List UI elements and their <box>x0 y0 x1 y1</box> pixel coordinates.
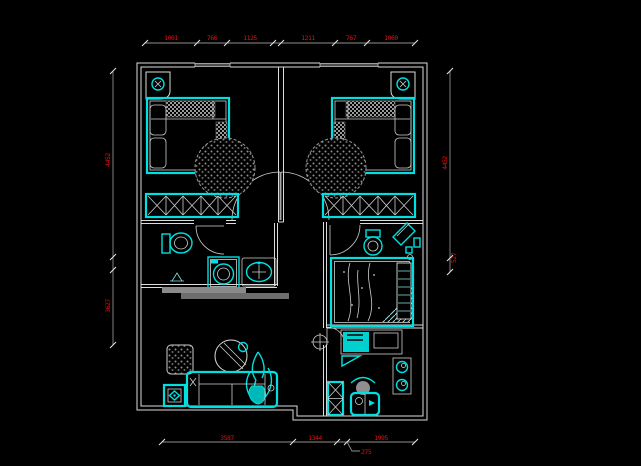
dim-label: 4452 <box>441 156 449 170</box>
floor-drain-symbol <box>170 273 184 281</box>
kitchen-study <box>328 330 411 415</box>
window-left <box>195 62 230 68</box>
dim-label: 4452 <box>104 153 112 167</box>
bedroom-left <box>146 72 255 217</box>
bedroom-right <box>306 72 415 217</box>
dim-right: 4452 527 <box>441 68 458 275</box>
vanity-items <box>406 238 420 260</box>
dim-label: 1995 <box>374 434 388 442</box>
dim-label: 766 <box>207 34 218 42</box>
bathroom-left-door <box>196 226 224 254</box>
dim-bottom: 3587 1344 1995 275 <box>159 434 418 456</box>
dim-label: 1125 <box>243 34 257 42</box>
dim-top: 1001 766 1125 1211 767 1060 <box>142 34 418 46</box>
dim-leader-label: 275 <box>361 448 372 456</box>
corner-cabinet-symbol <box>391 72 415 99</box>
floorplan-drawing: 1001 766 1125 1211 767 1060 4452 3627 44… <box>0 0 641 466</box>
bathroom-left <box>162 233 289 299</box>
dim-label: 1060 <box>384 34 398 42</box>
living-room <box>164 333 329 407</box>
tv-cabinet-symbol <box>162 287 289 299</box>
rug-symbol <box>195 138 255 198</box>
toilet-symbol <box>162 233 192 253</box>
corner-cabinet-symbol <box>146 72 170 99</box>
office-chair-symbol <box>351 378 379 416</box>
stove-cabinet-symbol <box>393 358 411 394</box>
dim-label: 527 <box>450 252 458 263</box>
bathroom-right <box>331 223 420 326</box>
decor-table-symbol <box>215 340 248 372</box>
plant-symbol <box>247 352 272 404</box>
dim-label: 1344 <box>308 434 322 442</box>
toilet-symbol <box>364 230 382 255</box>
shower-symbol <box>331 258 413 326</box>
window-right <box>320 62 378 68</box>
speaker-symbol <box>164 385 185 406</box>
bathroom-right-door <box>330 225 360 255</box>
rug-symbol <box>306 138 366 198</box>
dim-label: 767 <box>346 34 357 42</box>
dim-label: 3627 <box>104 299 112 313</box>
armchair-symbol <box>167 345 193 374</box>
tall-cabinet-symbol <box>328 382 343 415</box>
towel-rack-symbol <box>397 263 411 319</box>
dim-label: 3587 <box>220 434 234 442</box>
dim-label: 1211 <box>301 34 315 42</box>
dim-left: 4452 3627 <box>104 68 116 348</box>
corner-basin-symbol <box>393 223 415 245</box>
sink-symbol <box>242 258 276 286</box>
cad-canvas: 1001 766 1125 1211 767 1060 4452 3627 44… <box>0 0 641 466</box>
dim-label: 1001 <box>164 34 178 42</box>
